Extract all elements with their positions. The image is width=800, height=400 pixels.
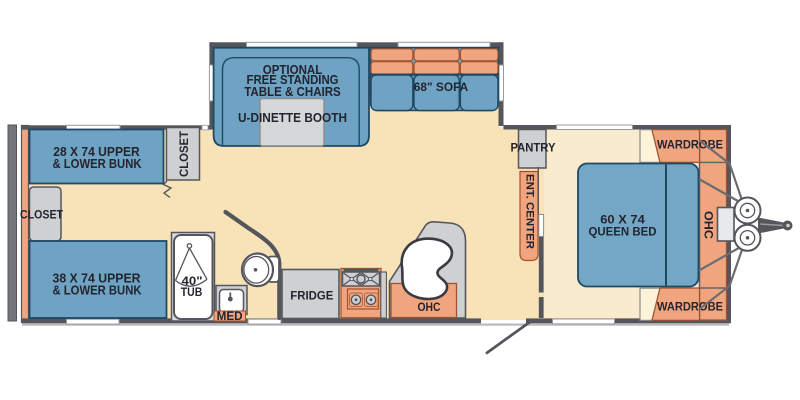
svg-text:OHC: OHC (418, 300, 441, 314)
svg-text:CLOSET: CLOSET (179, 131, 191, 177)
svg-text:CLOSET: CLOSET (20, 207, 64, 221)
svg-text:ENT. CENTER: ENT. CENTER (524, 174, 536, 249)
svg-text:QUEEN BED: QUEEN BED (589, 225, 657, 239)
svg-text:PANTRY: PANTRY (511, 141, 556, 155)
svg-text:FRIDGE: FRIDGE (290, 289, 333, 303)
svg-text:MED: MED (217, 309, 243, 323)
svg-text:U-DINETTE BOOTH: U-DINETTE BOOTH (238, 111, 347, 125)
svg-text:& LOWER BUNK: & LOWER BUNK (53, 283, 142, 297)
svg-text:TABLE & CHAIRS: TABLE & CHAIRS (244, 85, 341, 99)
svg-text:& LOWER BUNK: & LOWER BUNK (53, 157, 142, 171)
svg-text:WARDROBE: WARDROBE (657, 300, 723, 314)
svg-text:OHC: OHC (702, 211, 714, 239)
svg-text:68" SOFA: 68" SOFA (414, 80, 469, 94)
svg-text:TUB: TUB (181, 285, 203, 299)
